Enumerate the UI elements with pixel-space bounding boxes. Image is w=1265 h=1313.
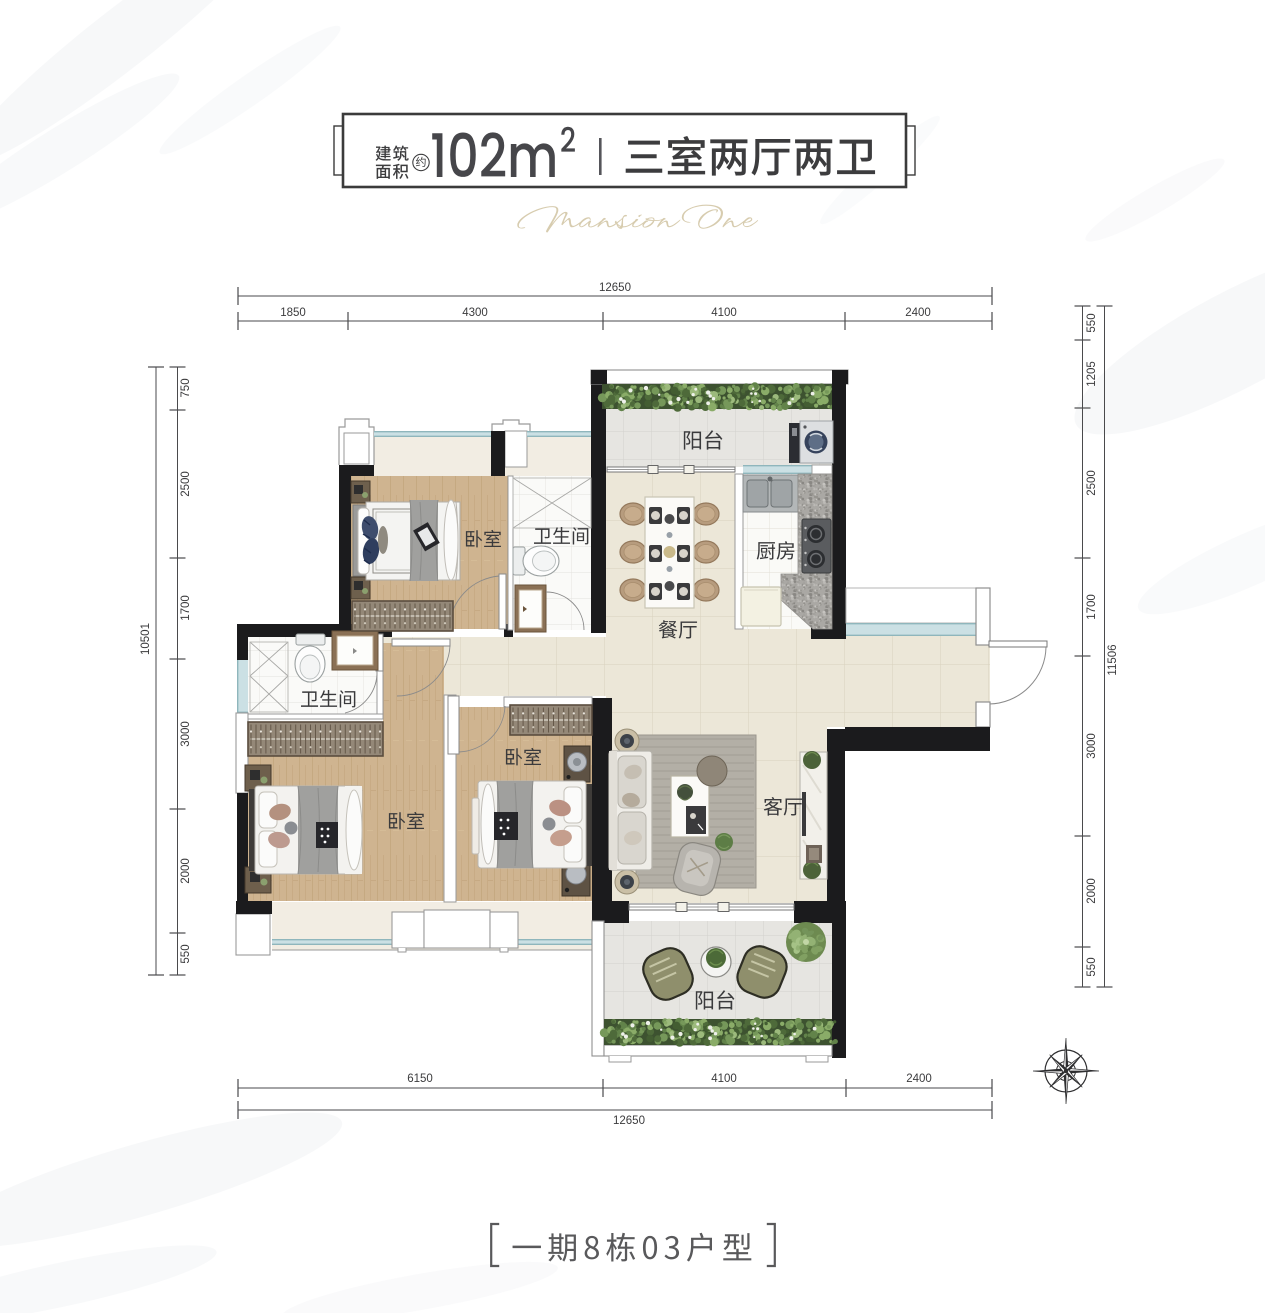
svg-text:1700: 1700: [1086, 594, 1098, 620]
svg-text:2400: 2400: [906, 1073, 932, 1085]
svg-text:12650: 12650: [599, 282, 631, 294]
svg-text:750: 750: [180, 378, 192, 397]
svg-text:1205: 1205: [1086, 361, 1098, 387]
svg-text:2400: 2400: [905, 307, 931, 319]
svg-text:3000: 3000: [1086, 733, 1098, 759]
svg-text:1700: 1700: [180, 595, 192, 621]
svg-text:12650: 12650: [613, 1115, 645, 1127]
svg-text:4300: 4300: [462, 307, 488, 319]
svg-text:2500: 2500: [1086, 470, 1098, 496]
svg-text:4100: 4100: [711, 1073, 737, 1085]
svg-text:6150: 6150: [407, 1073, 433, 1085]
svg-text:550: 550: [1086, 957, 1098, 976]
svg-text:11506: 11506: [1107, 644, 1119, 675]
svg-text:2000: 2000: [180, 858, 192, 884]
svg-text:4100: 4100: [711, 307, 737, 319]
svg-text:2500: 2500: [180, 471, 192, 497]
svg-text:550: 550: [1086, 313, 1098, 332]
svg-text:3000: 3000: [180, 721, 192, 747]
svg-text:550: 550: [180, 944, 192, 963]
svg-text:2000: 2000: [1086, 878, 1098, 904]
svg-text:10501: 10501: [140, 623, 152, 655]
svg-text:1850: 1850: [280, 307, 306, 319]
